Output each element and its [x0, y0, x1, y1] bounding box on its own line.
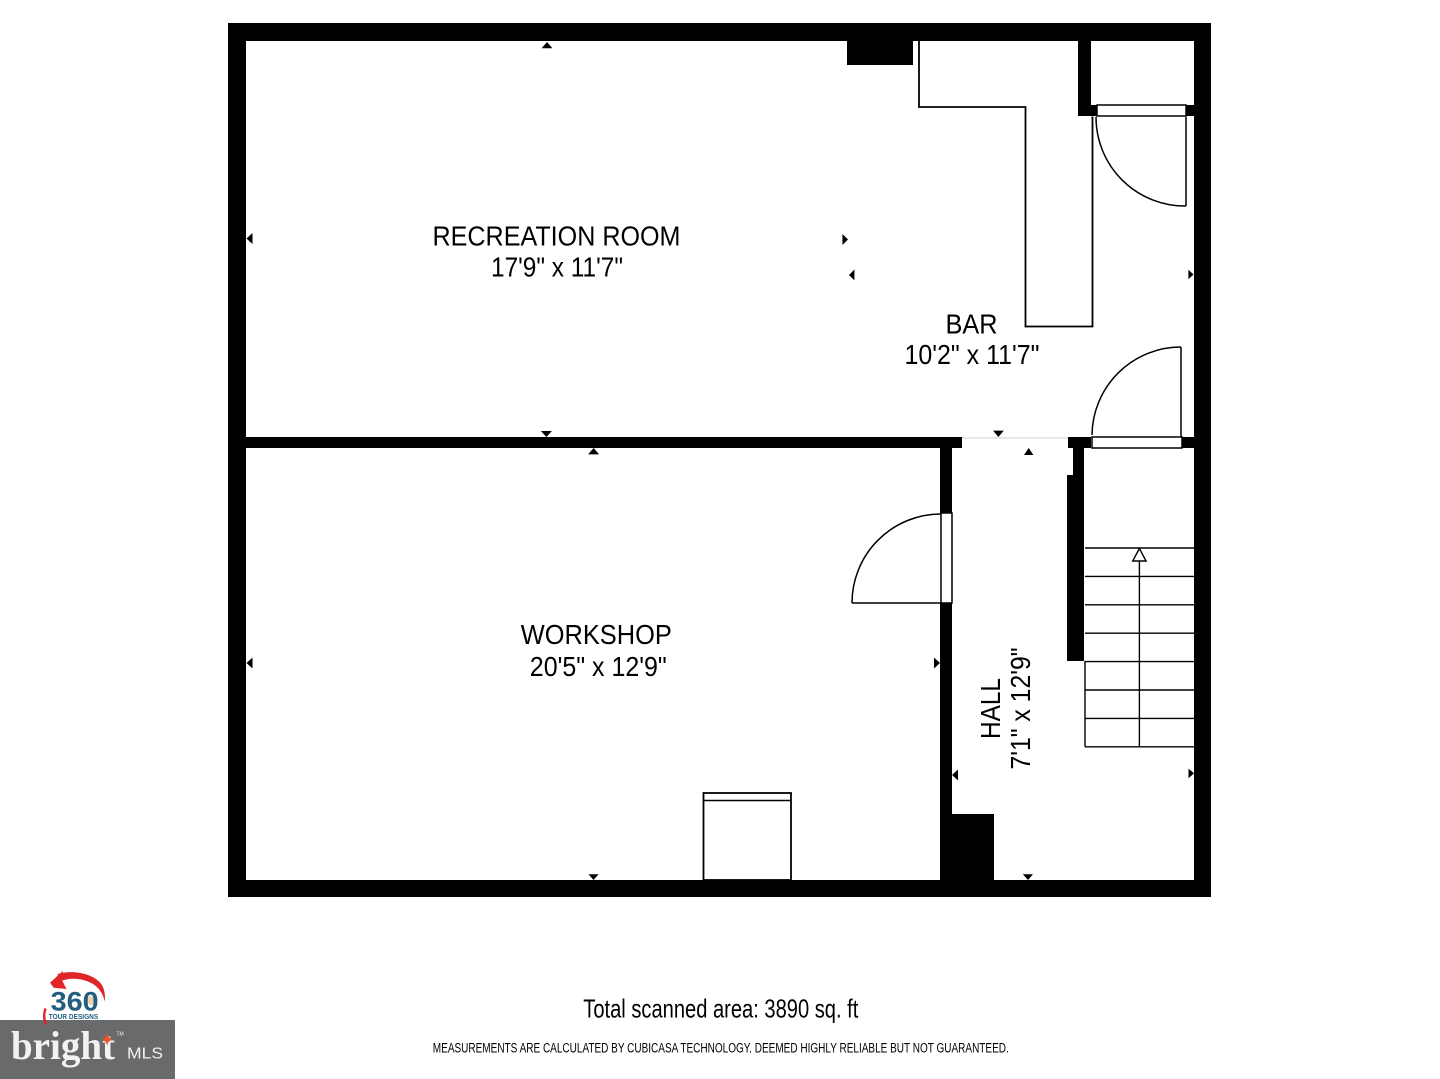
svg-text:7'1" x 12'9": 7'1" x 12'9" [1005, 648, 1036, 770]
svg-text:bright: bright [11, 1023, 116, 1068]
svg-text:HALL: HALL [975, 678, 1006, 739]
svg-text:BAR: BAR [946, 308, 998, 339]
svg-text:MLS: MLS [127, 1046, 163, 1063]
svg-text:MEASUREMENTS ARE CALCULATED BY: MEASUREMENTS ARE CALCULATED BY CUBICASA … [433, 1041, 1009, 1056]
svg-text:10'2" x 11'7": 10'2" x 11'7" [905, 339, 1040, 370]
svg-text:RECREATION ROOM: RECREATION ROOM [433, 221, 681, 252]
svg-text:WORKSHOP: WORKSHOP [521, 619, 672, 650]
svg-text:17'9" x 11'7": 17'9" x 11'7" [491, 252, 623, 283]
svg-text:Total scanned area: 3890 sq. f: Total scanned area: 3890 sq. ft [583, 994, 859, 1024]
svg-text:TM: TM [117, 1032, 124, 1038]
svg-text:20'5" x 12'9": 20'5" x 12'9" [530, 651, 667, 682]
svg-text:TOUR DESIGNS: TOUR DESIGNS [49, 1012, 99, 1021]
